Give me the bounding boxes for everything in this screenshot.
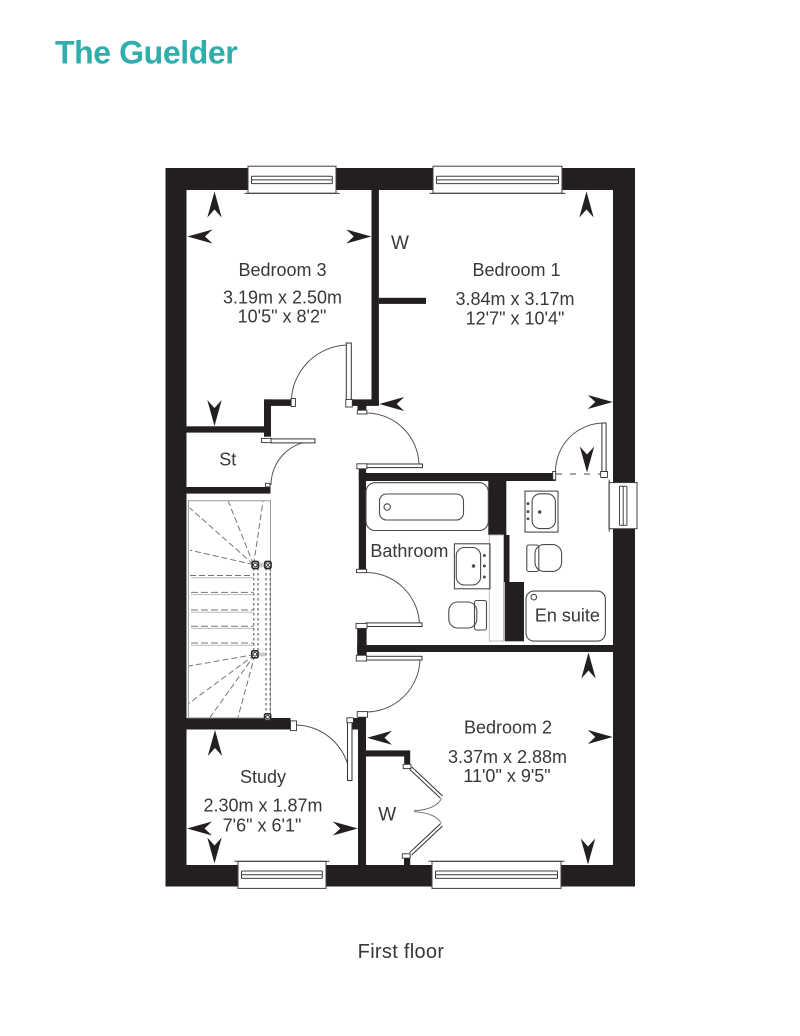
svg-text:11'0" x 9'5": 11'0" x 9'5": [463, 766, 550, 786]
svg-text:7'6" x 6'1": 7'6" x 6'1": [223, 816, 302, 836]
svg-text:3.84m x 3.17m: 3.84m x 3.17m: [455, 289, 574, 309]
svg-text:St: St: [219, 450, 236, 470]
svg-text:12'7" x 10'4": 12'7" x 10'4": [466, 309, 565, 329]
svg-text:First floor: First floor: [358, 941, 445, 963]
svg-text:Bedroom 2: Bedroom 2: [464, 718, 552, 738]
svg-text:3.19m x 2.50m: 3.19m x 2.50m: [223, 288, 342, 308]
svg-text:3.37m x 2.88m: 3.37m x 2.88m: [448, 747, 567, 767]
svg-text:Bathroom: Bathroom: [370, 541, 448, 561]
svg-text:Study: Study: [240, 767, 286, 787]
svg-text:2.30m x 1.87m: 2.30m x 1.87m: [203, 796, 322, 816]
svg-text:The Guelder: The Guelder: [55, 35, 237, 71]
svg-text:Bedroom 1: Bedroom 1: [472, 260, 560, 280]
svg-text:En suite: En suite: [535, 606, 600, 626]
svg-text:W: W: [378, 805, 396, 826]
svg-text:W: W: [391, 233, 409, 254]
svg-text:Bedroom 3: Bedroom 3: [238, 260, 326, 280]
svg-text:10'5" x 8'2": 10'5" x 8'2": [238, 307, 327, 327]
